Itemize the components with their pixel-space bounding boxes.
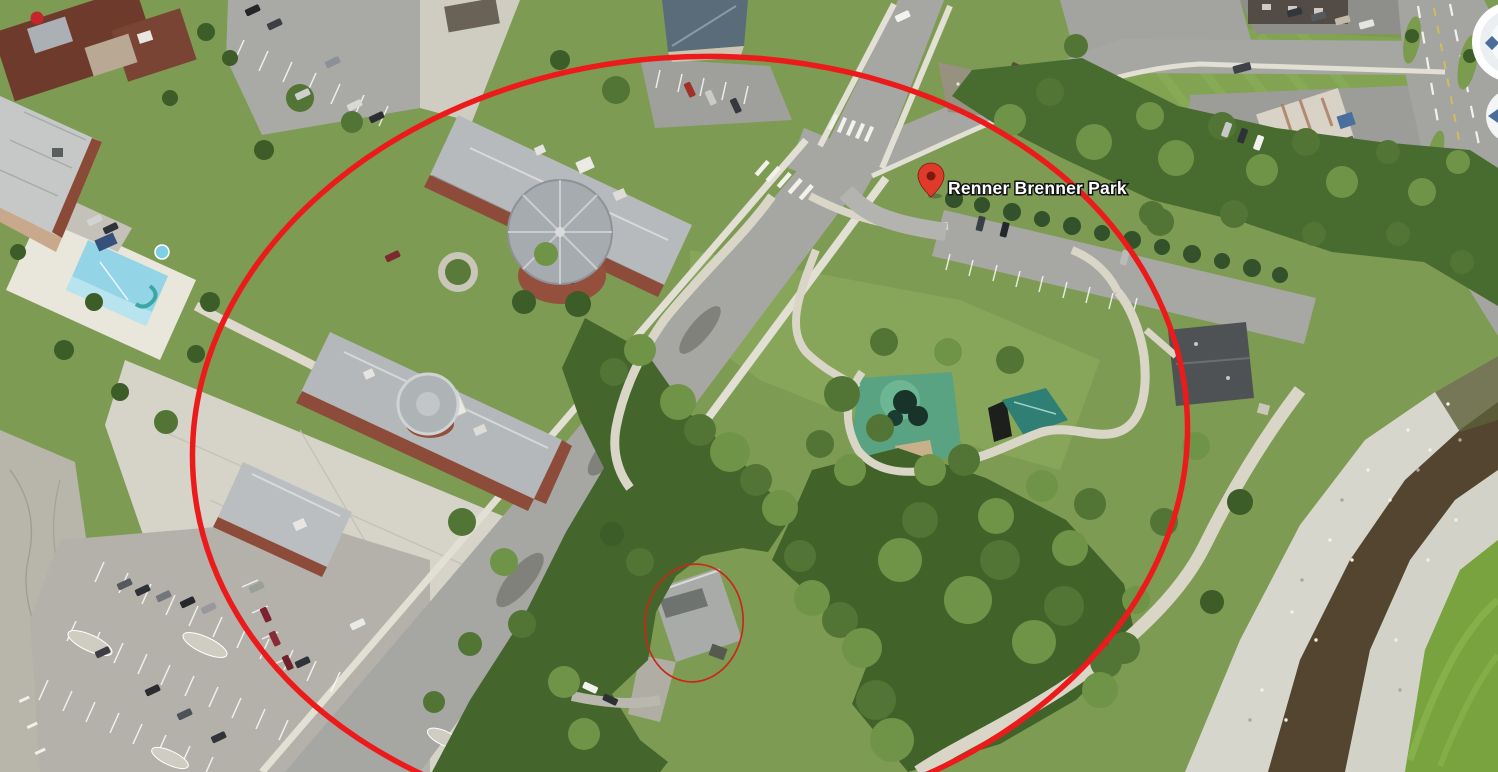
building-rotunda — [508, 180, 612, 304]
map-canvas[interactable]: Renner Brenner Park — [0, 0, 1498, 772]
pin-center-dot — [927, 172, 936, 181]
place-label[interactable]: Renner Brenner Park — [948, 178, 1127, 198]
top-left-dot — [31, 12, 44, 25]
building-hiproof-house — [662, 0, 748, 62]
plaza-planter — [438, 252, 478, 292]
aerial-map-view[interactable]: Renner Brenner Park — [0, 0, 1498, 772]
